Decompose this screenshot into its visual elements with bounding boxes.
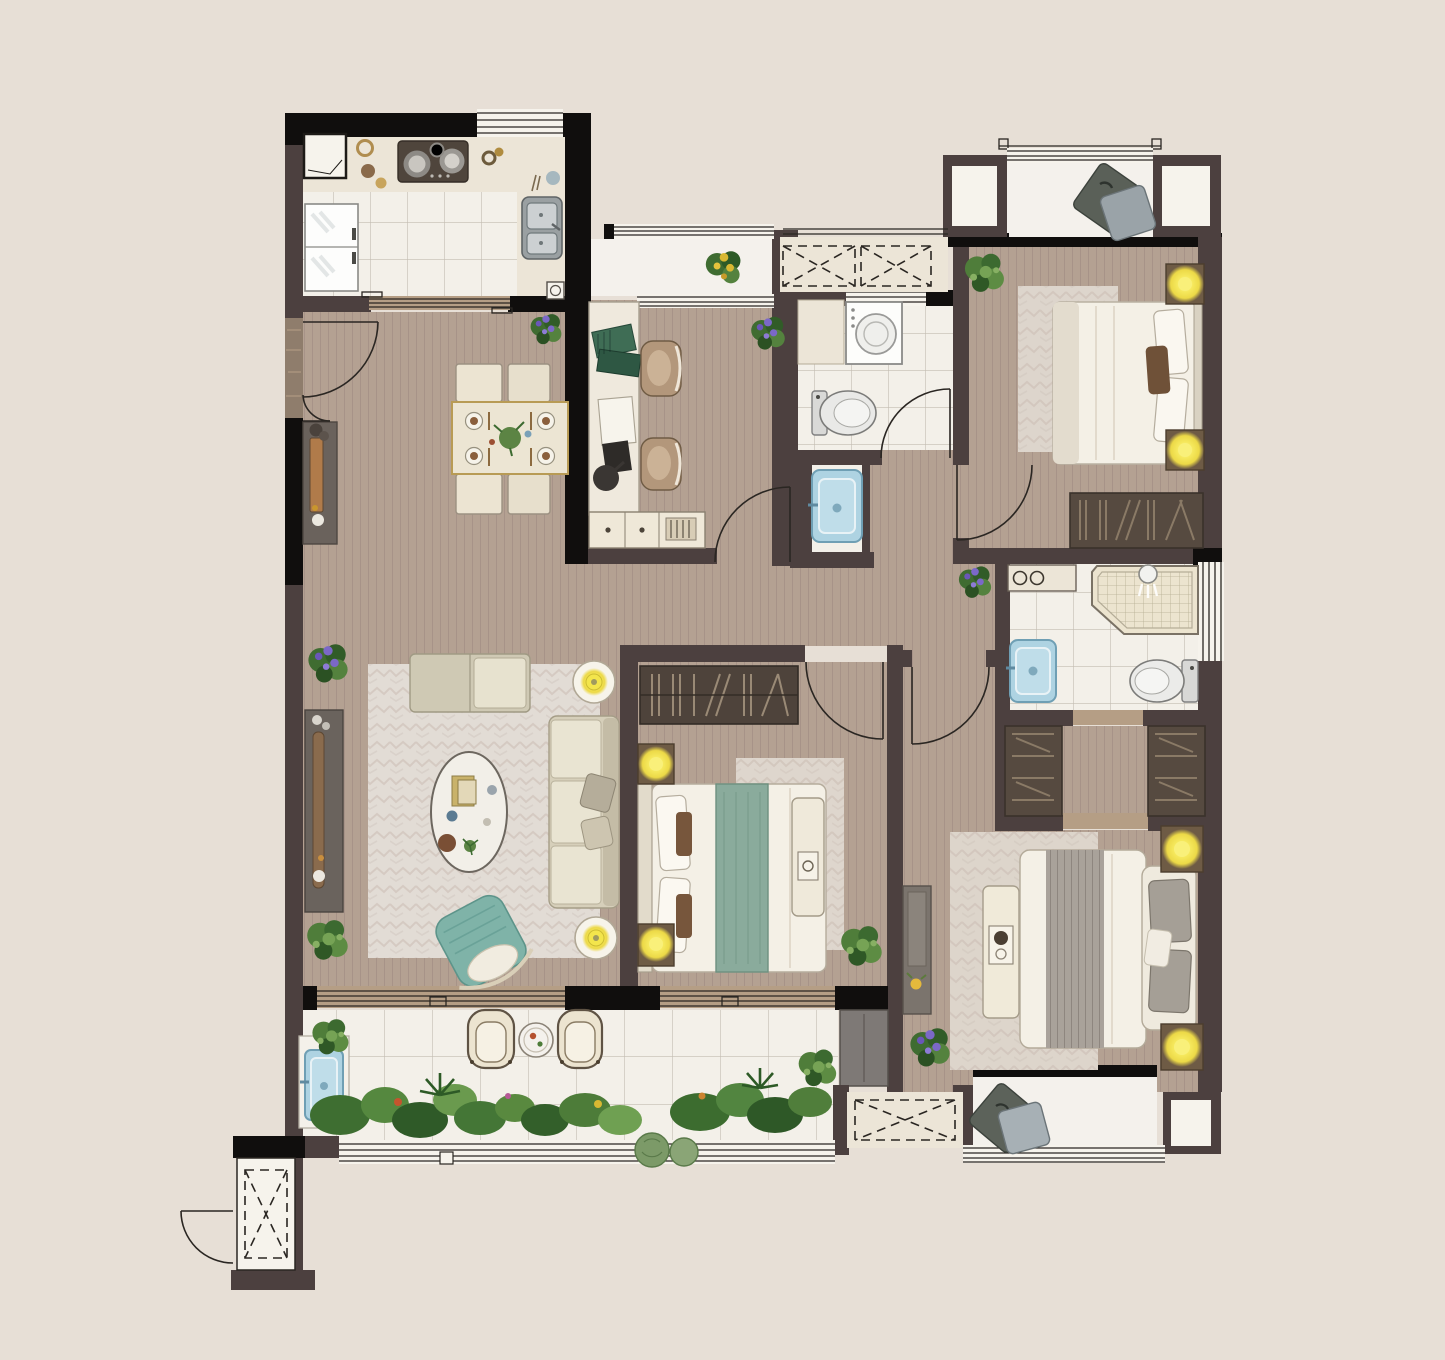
ensuite-counter (1008, 565, 1076, 591)
task-chair (641, 438, 681, 490)
task-chair (641, 341, 681, 396)
dining-chair (456, 474, 502, 514)
kitchen-window (477, 109, 563, 137)
ensuite-toilet (1130, 660, 1198, 702)
service-shaft (237, 1158, 295, 1270)
bookshelf (640, 666, 798, 724)
topiary (670, 1138, 698, 1166)
accent-pillow (676, 894, 692, 938)
floor-hall-master (903, 646, 995, 830)
floor-corridor-bath (870, 450, 953, 564)
table-centerpiece (499, 427, 521, 449)
dining-chair (508, 364, 550, 402)
floor-plan-canvas (0, 0, 1445, 1360)
toilet (812, 391, 876, 435)
throw-pillow (580, 815, 614, 850)
ac-platform-north (780, 229, 948, 292)
sofa (549, 716, 619, 908)
wall-kitchen-study (565, 113, 591, 564)
hall-console (903, 886, 931, 1014)
topiary (635, 1133, 669, 1167)
shower-head (1139, 565, 1157, 583)
small-pillow (1144, 929, 1173, 968)
wardrobe (1070, 493, 1203, 548)
dining-chair (508, 474, 550, 514)
east-window (1198, 562, 1224, 661)
accent-pillow (1145, 345, 1170, 394)
study-balcony-window (604, 224, 774, 239)
wall-bedroom-north-west (953, 247, 969, 465)
dining-chair (456, 364, 502, 402)
master-window-glazing (963, 1145, 1165, 1163)
floor-corridor (591, 564, 995, 646)
floor-plan (0, 0, 1445, 1360)
accent-pillow (676, 812, 692, 856)
floor-drain (547, 282, 564, 299)
side-table (519, 1023, 553, 1057)
lounge-chair (468, 1010, 514, 1068)
living-balcony-slider (317, 986, 565, 1008)
kitchen-sink (522, 197, 562, 259)
chaise (410, 654, 530, 712)
balcony-railing (339, 1140, 835, 1164)
bay-window-north-glazing (999, 139, 1161, 163)
wardrobe-left (1005, 726, 1062, 816)
wall-hall-west (887, 645, 903, 1092)
study-balcony-sill (637, 294, 774, 308)
entry-wall-texture (285, 318, 303, 418)
laundry-counter (798, 300, 844, 364)
floor-study-balcony (591, 239, 772, 296)
ac-platform-south (847, 1092, 963, 1148)
ensuite-door-sill (1073, 710, 1143, 725)
sideboard (303, 422, 337, 544)
lounge-chair (558, 1010, 602, 1068)
coffee-table (431, 752, 507, 872)
wardrobe-right (1148, 726, 1205, 816)
fridge (305, 204, 358, 291)
kitchen-corner-cabinet (304, 134, 346, 178)
bed (1020, 850, 1196, 1048)
bedroom-middle-window (660, 986, 835, 1008)
desk-papers (598, 397, 636, 446)
bench (983, 886, 1019, 1018)
wall-living-bedroom (620, 645, 638, 990)
shaft-door (181, 1211, 233, 1263)
tv-console (305, 710, 343, 912)
bench (792, 798, 824, 916)
washing-machine (846, 302, 902, 364)
study-cabinet (589, 512, 705, 548)
vanity-basin (808, 470, 862, 542)
closet-door-sill (1063, 813, 1148, 829)
kitchen-pot (361, 164, 375, 178)
ensuite-basin (1006, 640, 1056, 702)
